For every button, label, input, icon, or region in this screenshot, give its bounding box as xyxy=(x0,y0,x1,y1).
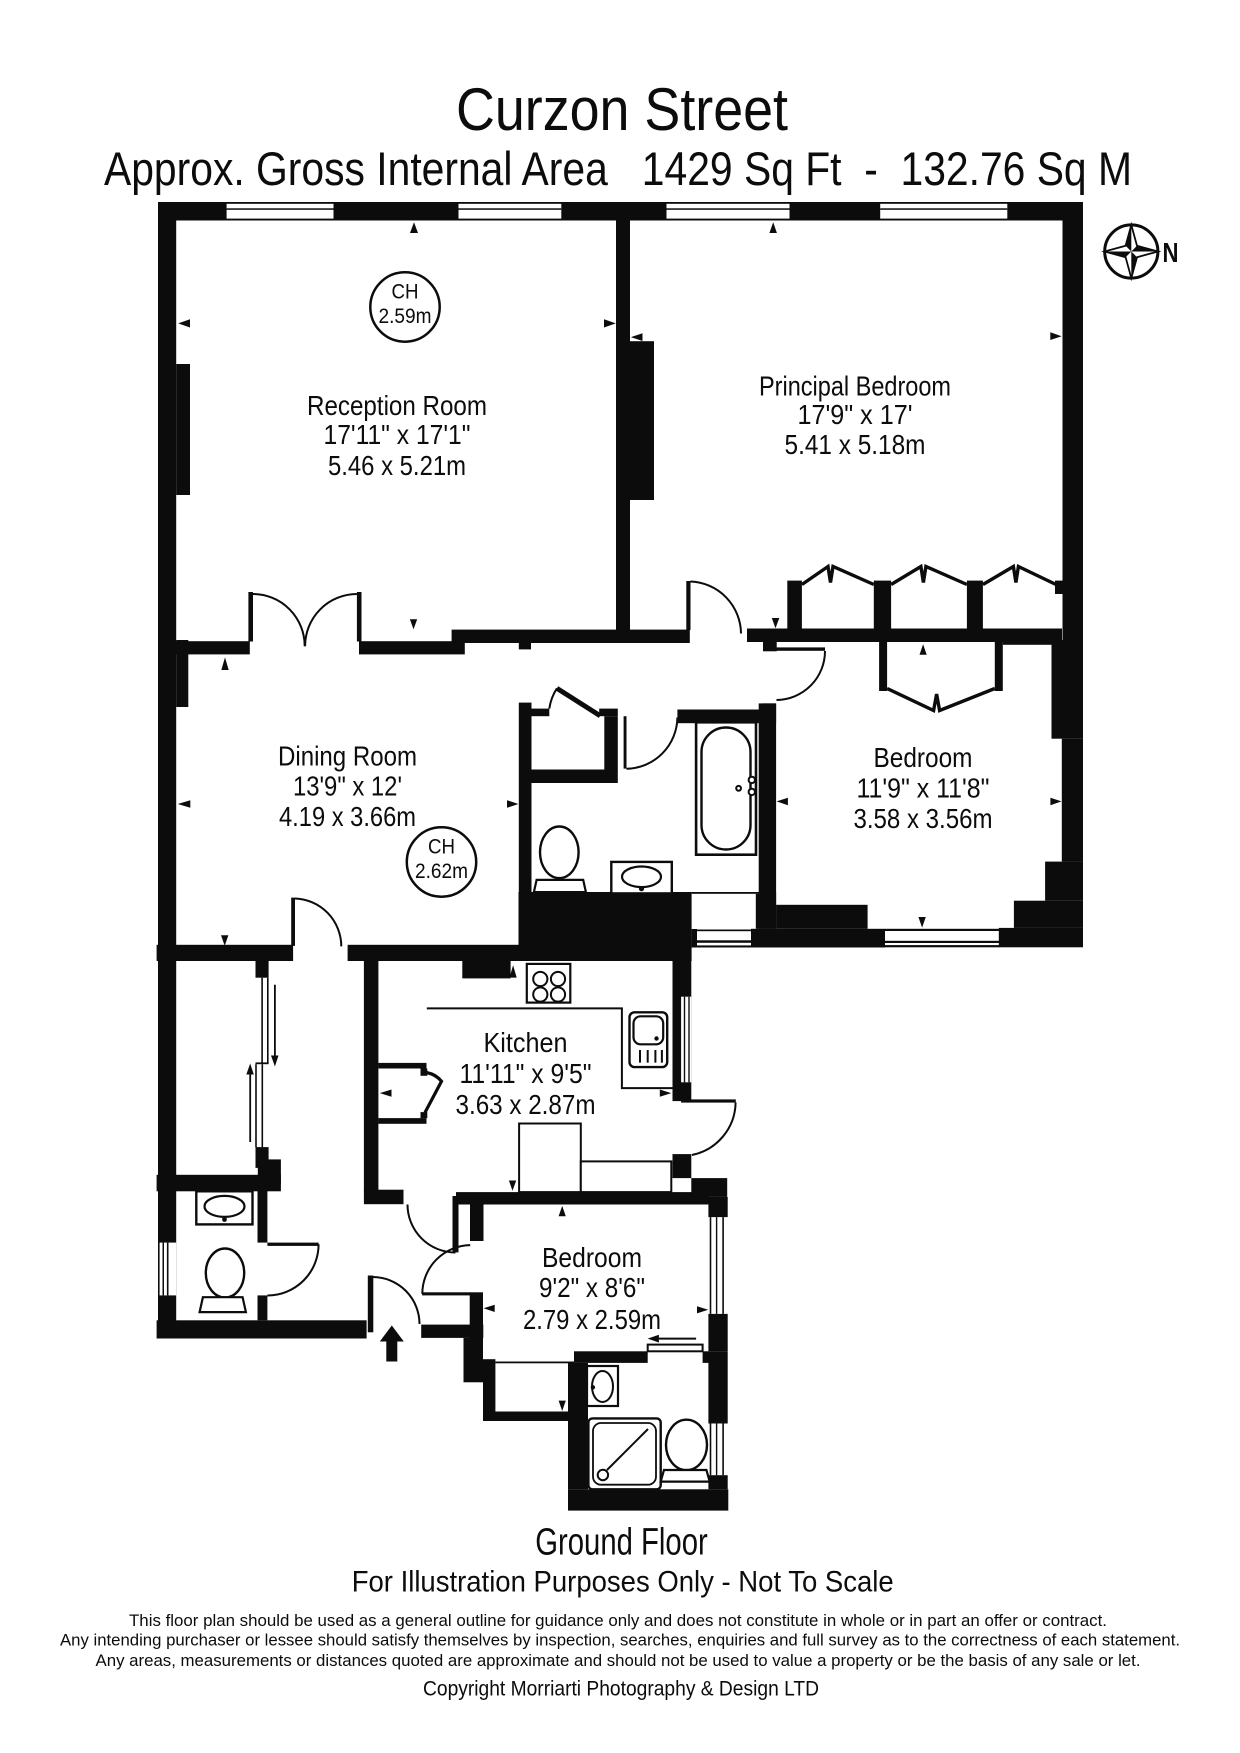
svg-text:Bedroom: Bedroom xyxy=(542,1242,642,1273)
svg-text:2.79 x 2.59m: 2.79 x 2.59m xyxy=(523,1304,661,1335)
svg-text:2.62m: 2.62m xyxy=(415,860,468,883)
svg-text:Approx. Gross Internal Area: Approx. Gross Internal Area 1429 Sq Ft -… xyxy=(104,142,1132,195)
svg-text:13'9" x 12': 13'9" x 12' xyxy=(293,771,402,802)
svg-text:5.46 x 5.21m: 5.46 x 5.21m xyxy=(328,450,466,481)
svg-text:11'9" x 11'8": 11'9" x 11'8" xyxy=(857,773,990,804)
svg-text:17'9" x 17': 17'9" x 17' xyxy=(798,399,913,430)
svg-text:Reception Room: Reception Room xyxy=(307,390,487,421)
svg-text:17'11" x 17'1": 17'11" x 17'1" xyxy=(324,419,471,450)
svg-text:N: N xyxy=(1163,237,1179,268)
svg-text:CH: CH xyxy=(428,835,455,858)
svg-text:For Illustration Purposes Only: For Illustration Purposes Only - Not To … xyxy=(352,1566,894,1599)
svg-text:2.59m: 2.59m xyxy=(379,305,432,328)
svg-text:Any areas, measurements or dis: Any areas, measurements or distances quo… xyxy=(96,1651,1141,1670)
svg-text:This floor plan should be used: This floor plan should be used as a gene… xyxy=(129,1611,1107,1630)
svg-text:9'2" x 8'6": 9'2" x 8'6" xyxy=(539,1272,645,1303)
svg-text:3.58 x 3.56m: 3.58 x 3.56m xyxy=(854,803,993,834)
svg-text:Any intending purchaser or les: Any intending purchaser or lessee should… xyxy=(60,1631,1180,1650)
svg-text:Principal Bedroom: Principal Bedroom xyxy=(759,371,951,402)
svg-text:3.63 x 2.87m: 3.63 x 2.87m xyxy=(456,1089,596,1120)
svg-text:Bedroom: Bedroom xyxy=(874,742,973,773)
svg-text:Curzon Street: Curzon Street xyxy=(456,76,788,143)
svg-text:5.41 x 5.18m: 5.41 x 5.18m xyxy=(785,429,926,460)
svg-text:Kitchen: Kitchen xyxy=(484,1027,568,1058)
svg-text:CH: CH xyxy=(392,280,419,303)
svg-text:4.19 x 3.66m: 4.19 x 3.66m xyxy=(279,801,416,832)
svg-text:11'11" x 9'5": 11'11" x 9'5" xyxy=(460,1058,592,1089)
svg-text:Ground Floor: Ground Floor xyxy=(535,1521,708,1563)
svg-text:Copyright Morriarti Photograph: Copyright Morriarti Photography & Design… xyxy=(423,1676,819,1700)
svg-text:Dining Room: Dining Room xyxy=(278,740,417,771)
